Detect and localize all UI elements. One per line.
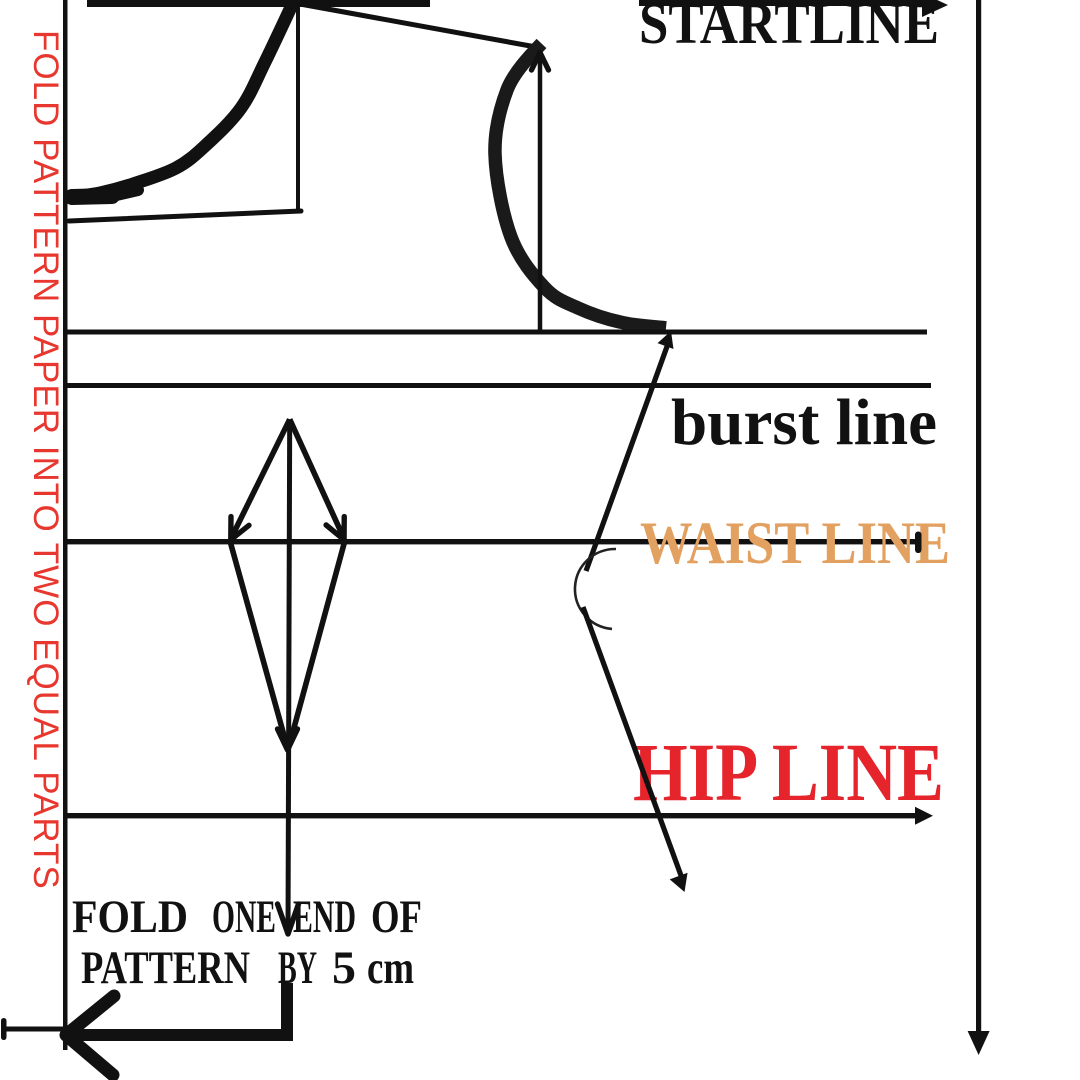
svg-text:WAIST LINE: WAIST LINE xyxy=(640,510,950,576)
svg-text:burst line: burst line xyxy=(671,386,937,459)
svg-text:STARTLINE: STARTLINE xyxy=(639,0,939,56)
svg-text:HIP LINE: HIP LINE xyxy=(633,726,944,818)
svg-text:FOLD PATTERN PAPER INTO TWO E: FOLD PATTERN PAPER INTO TWO EQUAL PARTS xyxy=(26,30,65,890)
